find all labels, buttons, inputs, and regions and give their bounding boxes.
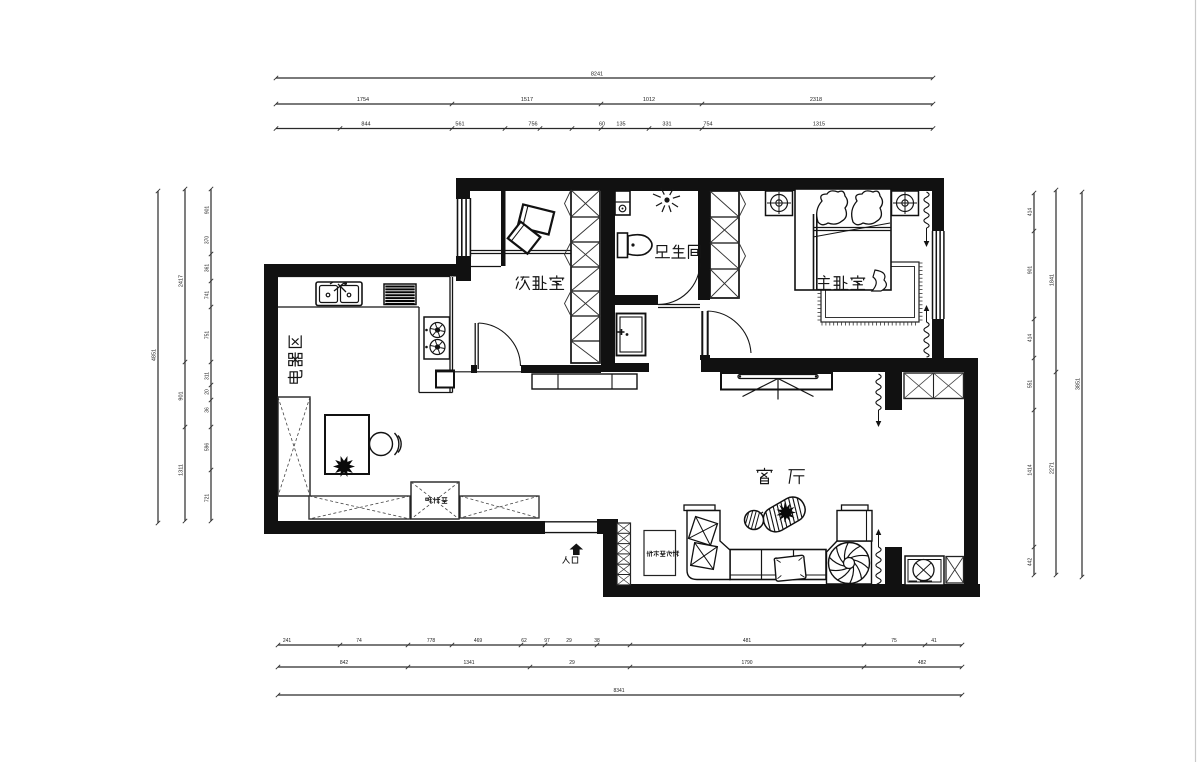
svg-text:2271: 2271 bbox=[1050, 462, 1056, 474]
svg-text:721: 721 bbox=[205, 494, 211, 503]
svg-text:60: 60 bbox=[599, 122, 605, 128]
svg-text:1517: 1517 bbox=[521, 97, 533, 103]
svg-text:29: 29 bbox=[569, 660, 575, 666]
svg-text:469: 469 bbox=[474, 638, 483, 644]
svg-text:741: 741 bbox=[205, 291, 211, 300]
svg-text:361: 361 bbox=[205, 264, 211, 273]
svg-text:20: 20 bbox=[205, 389, 211, 395]
svg-text:1414: 1414 bbox=[1028, 464, 1034, 475]
svg-text:38: 38 bbox=[594, 638, 600, 644]
svg-text:481: 481 bbox=[743, 638, 752, 644]
svg-text:331: 331 bbox=[662, 122, 671, 128]
svg-text:561: 561 bbox=[455, 122, 464, 128]
svg-text:844: 844 bbox=[361, 122, 370, 128]
svg-text:1311: 1311 bbox=[179, 464, 185, 476]
svg-text:2417: 2417 bbox=[179, 275, 185, 287]
svg-text:62: 62 bbox=[521, 638, 527, 644]
svg-text:1841: 1841 bbox=[1050, 274, 1056, 286]
svg-text:751: 751 bbox=[205, 331, 211, 340]
svg-text:442: 442 bbox=[1028, 558, 1034, 567]
svg-text:482: 482 bbox=[918, 660, 927, 666]
svg-text:1315: 1315 bbox=[813, 122, 825, 128]
svg-text:29: 29 bbox=[566, 638, 572, 644]
svg-text:4851: 4851 bbox=[152, 349, 158, 361]
svg-text:1012: 1012 bbox=[643, 97, 655, 103]
svg-text:1341: 1341 bbox=[463, 660, 474, 666]
svg-text:1790: 1790 bbox=[741, 660, 752, 666]
svg-text:75: 75 bbox=[891, 638, 897, 644]
svg-text:41: 41 bbox=[931, 638, 937, 644]
svg-text:1754: 1754 bbox=[357, 97, 369, 103]
svg-text:901: 901 bbox=[1028, 266, 1034, 275]
svg-text:754: 754 bbox=[703, 122, 712, 128]
svg-text:596: 596 bbox=[205, 443, 211, 452]
svg-text:97: 97 bbox=[544, 638, 550, 644]
svg-text:901: 901 bbox=[179, 391, 185, 400]
svg-text:3851: 3851 bbox=[1076, 378, 1082, 390]
svg-text:8341: 8341 bbox=[613, 688, 624, 694]
svg-text:74: 74 bbox=[356, 638, 362, 644]
svg-text:241: 241 bbox=[283, 638, 292, 644]
svg-text:551: 551 bbox=[1028, 380, 1034, 389]
svg-text:36: 36 bbox=[205, 407, 211, 413]
svg-text:414: 414 bbox=[1028, 334, 1034, 343]
svg-text:2318: 2318 bbox=[810, 97, 822, 103]
svg-text:311: 311 bbox=[205, 372, 211, 380]
svg-text:901: 901 bbox=[205, 206, 211, 215]
svg-text:135: 135 bbox=[616, 122, 625, 128]
svg-text:756: 756 bbox=[528, 122, 537, 128]
svg-text:414: 414 bbox=[1028, 208, 1034, 217]
svg-text:842: 842 bbox=[340, 660, 349, 666]
svg-text:370: 370 bbox=[205, 236, 211, 245]
svg-text:8241: 8241 bbox=[591, 72, 603, 78]
svg-text:778: 778 bbox=[427, 638, 436, 644]
